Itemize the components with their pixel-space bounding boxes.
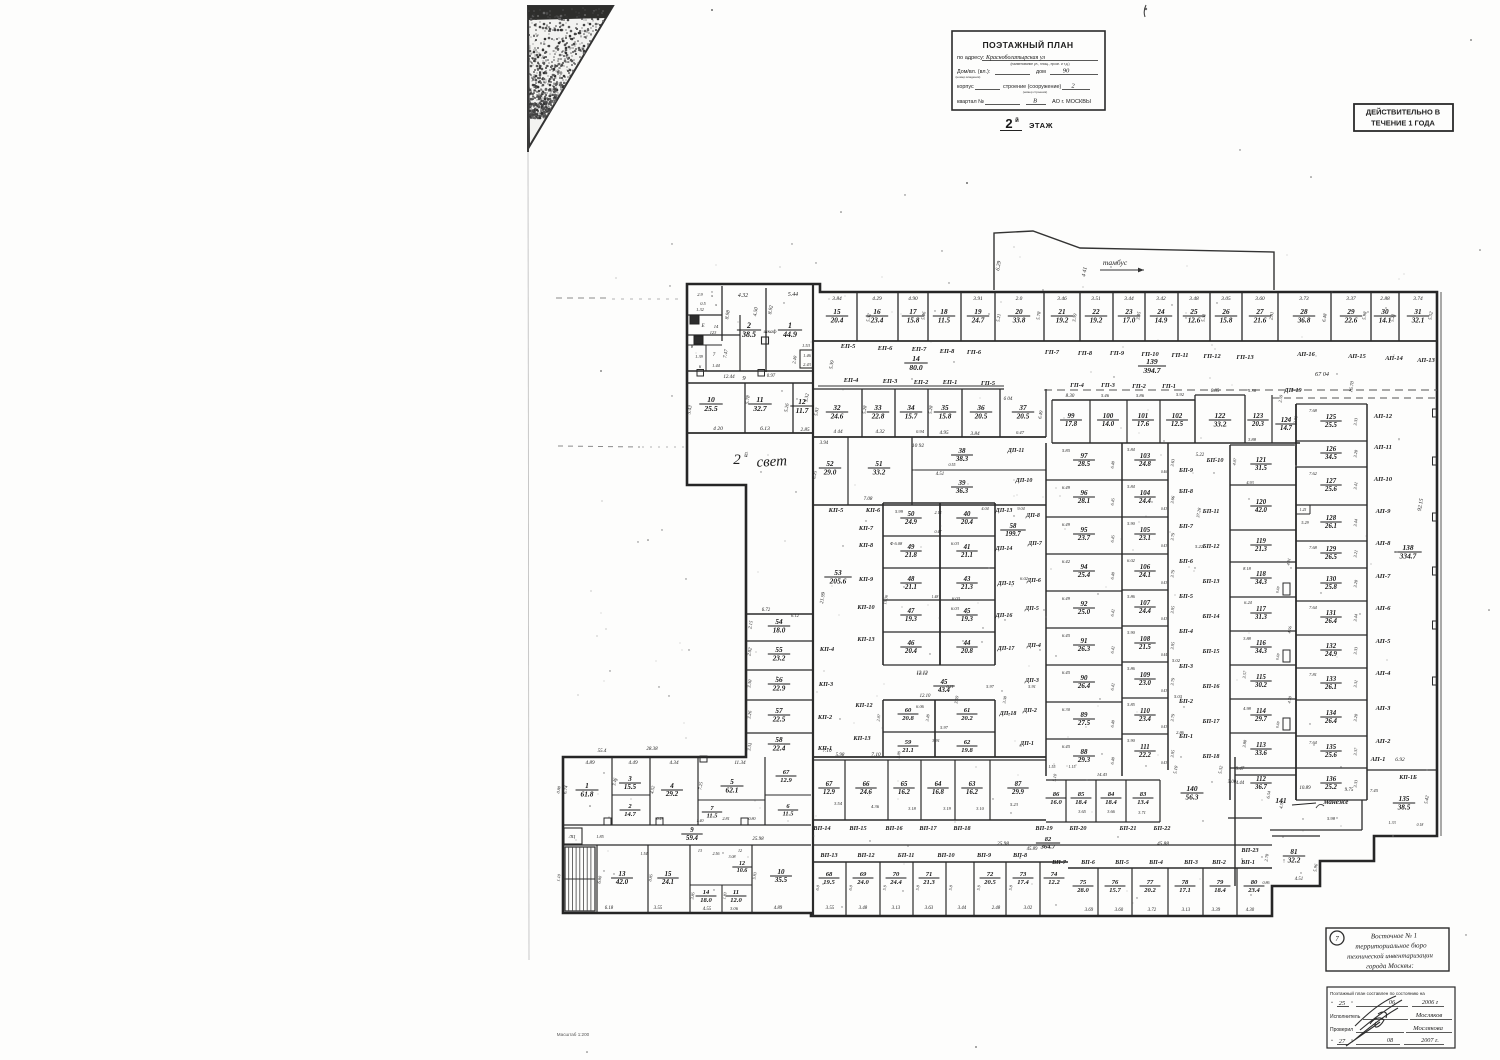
svg-text:БП-12: БП-12 — [1202, 543, 1220, 550]
svg-text:90: 90 — [1063, 68, 1070, 75]
svg-text:5.44: 5.44 — [788, 291, 798, 298]
svg-text:15: 15 — [833, 308, 841, 316]
svg-text:5.90: 5.90 — [1127, 521, 1135, 526]
svg-text:135: 135 — [1399, 795, 1410, 803]
svg-text:3.08: 3.08 — [729, 854, 736, 859]
svg-text:9: 9 — [690, 827, 694, 834]
svg-text:25.5: 25.5 — [703, 404, 717, 413]
svg-text:АП-16: АП-16 — [1296, 351, 1315, 358]
svg-text:ГП-9: ГП-9 — [1109, 350, 1125, 357]
svg-text:5.02: 5.02 — [1172, 658, 1181, 663]
svg-text:АО г. МОСКВЫ: АО г. МОСКВЫ — [1052, 99, 1091, 105]
svg-text:6.02: 6.02 — [1127, 558, 1135, 563]
svg-text:3.48: 3.48 — [1188, 296, 1199, 302]
svg-text:130: 130 — [1326, 576, 1337, 583]
svg-text:129: 129 — [1326, 546, 1337, 553]
svg-text:ВП-23: ВП-23 — [1240, 847, 1258, 854]
svg-text:7.81: 7.81 — [1309, 672, 1317, 677]
svg-text:ДП-4: ДП-4 — [1026, 643, 1041, 649]
svg-text:6.24: 6.24 — [1244, 600, 1252, 605]
svg-text:1.54: 1.54 — [641, 851, 648, 856]
svg-text:ДП-14: ДП-14 — [995, 546, 1013, 552]
svg-text:76: 76 — [1112, 879, 1119, 886]
svg-text:65: 65 — [901, 781, 908, 788]
svg-text:БП-17: БП-17 — [1202, 718, 1221, 725]
svg-text:Исполнитель: Исполнитель — [1330, 1014, 1361, 1020]
svg-text:18.0: 18.0 — [773, 626, 786, 634]
svg-text:21.6: 21.6 — [1253, 316, 1267, 324]
svg-text:135: 135 — [1326, 744, 1337, 751]
svg-text:ПОЭТАЖНЫЙ ПЛАН: ПОЭТАЖНЫЙ ПЛАН — [982, 39, 1073, 50]
svg-text:2.48: 2.48 — [992, 906, 1001, 911]
svg-text:6.49: 6.49 — [1062, 485, 1071, 490]
svg-text:6.45: 6.45 — [1062, 633, 1071, 638]
svg-text:108: 108 — [1140, 636, 1151, 643]
svg-text:26.1: 26.1 — [1324, 523, 1337, 530]
svg-text:3.44: 3.44 — [958, 906, 967, 911]
svg-text:11.5: 11.5 — [707, 813, 719, 820]
svg-text:2: 2 — [1005, 116, 1012, 131]
svg-text:81: 81 — [1290, 848, 1297, 856]
svg-text:15.7: 15.7 — [1109, 887, 1121, 894]
svg-text:3.02: 3.02 — [1024, 906, 1033, 911]
svg-text:3.66: 3.66 — [1107, 809, 1115, 814]
svg-text:22.8: 22.8 — [871, 412, 885, 420]
svg-text:7.68: 7.68 — [1309, 545, 1317, 550]
svg-text:92: 92 — [1081, 600, 1089, 608]
svg-text:73: 73 — [1020, 871, 1027, 878]
svg-text:20.4: 20.4 — [830, 316, 844, 324]
svg-text:0.43: 0.43 — [1161, 725, 1167, 729]
svg-text:126: 126 — [1326, 446, 1337, 453]
svg-text:21.1: 21.1 — [960, 552, 973, 559]
svg-text:ДП-3: ДП-3 — [1024, 678, 1039, 684]
svg-text:19.2: 19.2 — [1090, 316, 1103, 324]
svg-text:3: 3 — [627, 775, 632, 783]
svg-text:22: 22 — [1091, 308, 1100, 316]
svg-text:19.3: 19.3 — [961, 616, 973, 623]
svg-text:21: 21 — [1057, 308, 1065, 316]
svg-text:ЕП-6: ЕП-6 — [877, 345, 893, 352]
svg-text:0.43: 0.43 — [1161, 507, 1167, 511]
svg-text:ДП-19: ДП-19 — [1283, 387, 1301, 394]
svg-text:17.8: 17.8 — [1065, 420, 1078, 428]
svg-text:115: 115 — [1256, 674, 1266, 681]
svg-text:29: 29 — [1346, 308, 1355, 316]
svg-text:5.22: 5.22 — [1195, 544, 1204, 549]
svg-text:24: 24 — [1156, 308, 1165, 316]
svg-text:5.97: 5.97 — [986, 684, 994, 689]
svg-text:42.0: 42.0 — [1254, 507, 1267, 514]
svg-text:59: 59 — [905, 739, 912, 746]
svg-text:КП-6: КП-6 — [865, 507, 881, 514]
svg-text:ВП-19: ВП-19 — [1034, 825, 1052, 832]
svg-text:7.68: 7.68 — [1309, 408, 1317, 413]
svg-text:13.4: 13.4 — [1137, 799, 1149, 806]
svg-text:88: 88 — [1081, 748, 1089, 756]
svg-text:Восточное № 1: Восточное № 1 — [1371, 932, 1417, 941]
svg-text:12.5: 12.5 — [1171, 420, 1184, 428]
svg-text:6.92: 6.92 — [1395, 757, 1405, 763]
svg-text:124: 124 — [1281, 417, 1292, 424]
svg-text:21.8: 21.8 — [904, 552, 917, 559]
svg-text:ВП-7: ВП-7 — [1051, 860, 1067, 866]
svg-text:17: 17 — [909, 308, 917, 316]
svg-text:17.4: 17.4 — [1017, 879, 1029, 886]
svg-text:24.4: 24.4 — [1138, 498, 1151, 505]
svg-text:20: 20 — [1014, 308, 1023, 316]
svg-text:4.30: 4.30 — [1246, 908, 1255, 913]
svg-text:67: 67 — [826, 781, 833, 788]
svg-text:БП-13: БП-13 — [1202, 578, 1220, 585]
svg-text:ЕП-8: ЕП-8 — [939, 348, 955, 355]
svg-text:71: 71 — [926, 871, 933, 878]
svg-text:20.2: 20.2 — [960, 715, 973, 722]
svg-text:20.4: 20.4 — [904, 648, 917, 655]
svg-text:17.0: 17.0 — [1123, 316, 1136, 324]
svg-text:24.9: 24.9 — [904, 519, 917, 526]
svg-text:32.7: 32.7 — [752, 404, 767, 413]
svg-text:12: 12 — [738, 848, 742, 853]
svg-text:АП-7: АП-7 — [1375, 573, 1392, 580]
svg-text:19.5: 19.5 — [823, 879, 835, 886]
svg-text:6.18: 6.18 — [605, 906, 614, 911]
svg-text:89: 89 — [1081, 711, 1089, 719]
svg-text:24.6: 24.6 — [830, 412, 844, 420]
svg-text:0.55: 0.55 — [949, 462, 956, 467]
svg-text:ВП-1: ВП-1 — [1240, 860, 1255, 866]
svg-text:60: 60 — [905, 707, 912, 714]
svg-text:133: 133 — [1326, 676, 1337, 683]
svg-text:5.85: 5.85 — [1127, 702, 1135, 707]
svg-text:0.97: 0.97 — [767, 374, 776, 379]
svg-text:х: х — [714, 302, 717, 307]
svg-text:5.85: 5.85 — [1062, 448, 1071, 453]
svg-text:14.1: 14.1 — [1379, 316, 1392, 324]
svg-text:7.62: 7.62 — [1309, 471, 1317, 476]
svg-text:18.4: 18.4 — [1105, 799, 1117, 806]
svg-text:ВП-4: ВП-4 — [1148, 860, 1163, 866]
svg-text:34.5: 34.5 — [1324, 454, 1337, 461]
svg-text:2.9: 2.9 — [697, 292, 703, 297]
svg-text:96: 96 — [1081, 489, 1089, 497]
svg-text:ТЕЧЕНИЕ 1 ГОДА: ТЕЧЕНИЕ 1 ГОДА — [1371, 119, 1435, 128]
svg-text:БП-20: БП-20 — [1069, 825, 1087, 832]
svg-text:8.18: 8.18 — [1243, 566, 1251, 571]
svg-text:44: 44 — [963, 640, 971, 647]
svg-text:91: 91 — [1081, 637, 1088, 645]
svg-text:1.25: 1.25 — [1300, 508, 1307, 512]
svg-text:72: 72 — [987, 871, 994, 878]
svg-text:32.2: 32.2 — [1287, 856, 1301, 864]
svg-text:х: х — [710, 293, 713, 298]
svg-text:84: 84 — [1108, 791, 1115, 798]
svg-text:ДП-8: ДП-8 — [1025, 513, 1040, 519]
svg-text:44.9: 44.9 — [782, 330, 797, 339]
svg-text:90: 90 — [1081, 674, 1089, 682]
svg-text:ДП-18: ДП-18 — [999, 711, 1017, 717]
svg-text:ЕП-4: ЕП-4 — [843, 377, 859, 384]
svg-text:23.1: 23.1 — [1138, 535, 1151, 542]
svg-text:шкаф: шкаф — [764, 328, 777, 335]
svg-text:11.5: 11.5 — [938, 316, 951, 324]
svg-text:3.74: 3.74 — [1412, 296, 1423, 302]
svg-text:й: й — [744, 451, 748, 459]
svg-text:Проверил: Проверил — [1330, 1027, 1353, 1033]
svg-text:ДП-7: ДП-7 — [1027, 541, 1043, 547]
svg-text:134: 134 — [1326, 710, 1337, 717]
svg-text:12.6: 12.6 — [1188, 316, 1201, 324]
svg-text:15: 15 — [665, 871, 672, 878]
svg-text:ВП-9: ВП-9 — [976, 852, 991, 859]
svg-text:63: 63 — [969, 781, 976, 788]
svg-text:1.55: 1.55 — [1049, 764, 1056, 769]
svg-text:78: 78 — [1182, 879, 1189, 886]
svg-text:3.48: 3.48 — [859, 906, 868, 911]
svg-text:0.18: 0.18 — [1417, 823, 1424, 827]
svg-text:Поэтажный план составлен по со: Поэтажный план составлен по состоянию на — [1330, 990, 1425, 996]
svg-text:20.2: 20.2 — [1143, 887, 1156, 894]
svg-text:08: 08 — [1387, 1037, 1394, 1044]
svg-text:0.43: 0.43 — [1161, 581, 1167, 585]
svg-text:6.49: 6.49 — [1062, 596, 1071, 601]
svg-text:14.0: 14.0 — [1102, 420, 1115, 428]
svg-text:КП-10: КП-10 — [856, 604, 874, 611]
svg-text:21.3: 21.3 — [1254, 546, 1267, 553]
svg-text:50: 50 — [908, 511, 915, 518]
svg-text:15.8: 15.8 — [907, 316, 920, 324]
svg-text:0.43: 0.43 — [1161, 617, 1167, 621]
svg-text:11.5: 11.5 — [783, 811, 795, 818]
svg-text:40: 40 — [963, 511, 971, 518]
svg-text:70: 70 — [893, 871, 900, 878]
svg-text:82: 82 — [1045, 836, 1052, 843]
svg-text:ЕП-3: ЕП-3 — [882, 378, 898, 385]
svg-text:ДП-16: ДП-16 — [995, 613, 1013, 619]
svg-text:64: 64 — [935, 781, 942, 788]
svg-text:69: 69 — [860, 871, 867, 878]
svg-text:25.6: 25.6 — [1324, 752, 1337, 759]
svg-text:3.13: 3.13 — [1182, 908, 1191, 913]
svg-text:54: 54 — [775, 618, 783, 626]
svg-text:КП-7: КП-7 — [858, 525, 874, 532]
svg-text:20.3: 20.3 — [1251, 421, 1264, 428]
svg-text:ЕП-1: ЕП-1 — [942, 379, 958, 386]
svg-text:19.8: 19.8 — [961, 747, 973, 754]
svg-text:123: 123 — [710, 330, 717, 335]
svg-text:119: 119 — [1256, 538, 1266, 545]
svg-text:12.0: 12.0 — [730, 897, 742, 904]
svg-text:101: 101 — [1138, 412, 1149, 420]
svg-text:20.4: 20.4 — [960, 519, 973, 526]
svg-text:0.94: 0.94 — [916, 429, 925, 434]
svg-text:109: 109 — [1140, 672, 1151, 679]
svg-text:25.0: 25.0 — [1077, 608, 1091, 616]
svg-text:103: 103 — [1140, 453, 1151, 460]
svg-text:24.6: 24.6 — [859, 789, 872, 796]
svg-text:АП-11: АП-11 — [1373, 444, 1392, 451]
svg-text:25.2: 25.2 — [1324, 784, 1337, 791]
svg-text:127: 127 — [1326, 478, 1337, 485]
svg-text:41: 41 — [963, 544, 971, 551]
svg-text:Масштаб 1:200: Масштаб 1:200 — [557, 1032, 590, 1037]
svg-text:25: 25 — [1189, 308, 1198, 316]
svg-text:20.5: 20.5 — [974, 412, 988, 420]
svg-text:61.8: 61.8 — [581, 790, 594, 799]
svg-text:АП-10: АП-10 — [1373, 476, 1393, 483]
svg-text:2: 2 — [746, 321, 751, 330]
svg-text:3.91: 3.91 — [932, 738, 940, 743]
svg-text:5.86: 5.86 — [1136, 393, 1145, 398]
svg-text:31: 31 — [1413, 308, 1421, 316]
svg-text:27: 27 — [1255, 308, 1264, 316]
svg-text:118: 118 — [1256, 571, 1266, 578]
svg-text:ЛЦ: ЛЦ — [568, 834, 576, 839]
svg-text:ГП-7: ГП-7 — [1044, 349, 1060, 356]
svg-text:ЕП-2: ЕП-2 — [913, 379, 929, 386]
svg-text:6.03: 6.03 — [951, 606, 960, 611]
svg-text:3.84: 3.84 — [831, 296, 842, 302]
svg-text:3.73: 3.73 — [1298, 296, 1309, 302]
svg-text:ВП-18: ВП-18 — [952, 825, 970, 832]
svg-text:43: 43 — [963, 576, 971, 583]
svg-text:15.8: 15.8 — [1220, 316, 1233, 324]
svg-text:4.89: 4.89 — [774, 906, 783, 911]
svg-text:30: 30 — [1380, 308, 1389, 316]
svg-text:тамбус: тамбус — [1103, 258, 1128, 267]
svg-text:6.45: 6.45 — [1062, 744, 1071, 749]
svg-text:АП-6: АП-6 — [1375, 605, 1392, 612]
svg-text:20.8: 20.8 — [960, 648, 973, 655]
svg-text:1.46: 1.46 — [803, 353, 811, 358]
svg-text:ДП-5: ДП-5 — [1024, 606, 1039, 612]
svg-text:4.55: 4.55 — [703, 907, 712, 912]
svg-text:39: 39 — [958, 479, 967, 487]
svg-text:10.6: 10.6 — [737, 868, 748, 874]
svg-text:2.14: 2.14 — [935, 510, 942, 515]
svg-text:18.0: 18.0 — [700, 897, 712, 904]
svg-text:12.9: 12.9 — [780, 777, 792, 784]
svg-text:БП-15: БП-15 — [1202, 648, 1220, 655]
svg-text:1.40: 1.40 — [697, 818, 704, 823]
svg-text:74: 74 — [1051, 871, 1058, 878]
svg-text:КП-8: КП-8 — [858, 542, 873, 549]
svg-text:136: 136 — [1326, 776, 1337, 783]
svg-text:7.10: 7.10 — [822, 748, 831, 754]
svg-text:32: 32 — [832, 404, 841, 412]
svg-text:3.71: 3.71 — [1138, 810, 1146, 815]
svg-text:86: 86 — [1053, 791, 1060, 798]
svg-text:38: 38 — [958, 447, 967, 455]
svg-text:26.1: 26.1 — [1324, 684, 1337, 691]
svg-text:28.1: 28.1 — [1077, 497, 1090, 505]
svg-text:БП-9: БП-9 — [1178, 467, 1193, 474]
svg-text:ВП-10: ВП-10 — [936, 852, 954, 859]
svg-text:2006 г: 2006 г — [1422, 999, 1439, 1006]
svg-text:3.37: 3.37 — [1345, 296, 1356, 302]
svg-text:4.95: 4.95 — [939, 429, 948, 436]
svg-text:85: 85 — [1078, 791, 1085, 798]
svg-text:80: 80 — [1251, 879, 1258, 886]
svg-text:БП-11: БП-11 — [1202, 508, 1220, 515]
svg-text:4 20: 4 20 — [713, 426, 723, 432]
svg-text:4: 4 — [669, 782, 674, 790]
svg-text:79: 79 — [1217, 879, 1224, 886]
svg-text:6.72: 6.72 — [762, 608, 771, 613]
svg-text:14.7: 14.7 — [1280, 425, 1292, 432]
svg-text:КП-3: КП-3 — [818, 681, 833, 688]
svg-text:125: 125 — [1326, 414, 1337, 421]
svg-text:ГП-11: ГП-11 — [1171, 352, 1189, 359]
svg-text:ДП-13: ДП-13 — [995, 508, 1013, 514]
svg-text:3.44: 3.44 — [1123, 296, 1134, 302]
svg-text:4.44: 4.44 — [1236, 781, 1245, 786]
svg-text:16.2: 16.2 — [898, 789, 910, 796]
svg-text:Ф 6.08: Ф 6.08 — [890, 541, 903, 546]
svg-text:114: 114 — [1256, 708, 1266, 715]
svg-text:26.4: 26.4 — [1324, 718, 1337, 725]
svg-text:7.08: 7.08 — [864, 497, 873, 502]
svg-text:12.12: 12.12 — [916, 671, 928, 676]
svg-text:БП-14: БП-14 — [1202, 613, 1220, 620]
svg-text:3.94: 3.94 — [820, 441, 829, 446]
svg-text:16.0: 16.0 — [1050, 799, 1062, 806]
svg-text:АП-1: АП-1 — [1370, 756, 1386, 763]
svg-text:102: 102 — [1172, 412, 1183, 420]
svg-text:58: 58 — [1010, 523, 1017, 530]
svg-text:120: 120 — [1256, 499, 1267, 506]
svg-text:ДП-17: ДП-17 — [997, 646, 1016, 652]
svg-text:3.55: 3.55 — [826, 906, 835, 911]
svg-text:ДЕЙСТВИТЕЛЬНО В: ДЕЙСТВИТЕЛЬНО В — [1366, 108, 1440, 117]
svg-text:0.47: 0.47 — [1016, 430, 1025, 435]
svg-text:16.8: 16.8 — [932, 789, 944, 796]
svg-text:29.3: 29.3 — [1077, 756, 1091, 764]
svg-text:12.10: 12.10 — [920, 694, 931, 699]
svg-text:КП-1Б: КП-1Б — [1398, 775, 1417, 781]
svg-text:4.98: 4.98 — [1243, 706, 1251, 711]
svg-text:1.39: 1.39 — [695, 354, 703, 359]
svg-text:68: 68 — [826, 871, 833, 878]
svg-text:4.32: 4.32 — [738, 292, 748, 299]
svg-text:95: 95 — [1081, 526, 1089, 534]
svg-text:6.42: 6.42 — [1062, 559, 1071, 564]
svg-text:Краснобогатырская ул: Краснобогатырская ул — [985, 54, 1045, 61]
svg-text:1.48: 1.48 — [932, 595, 939, 599]
svg-text:34.3: 34.3 — [1254, 579, 1267, 586]
svg-text:БП-2: БП-2 — [1178, 698, 1193, 705]
svg-text:29.7: 29.7 — [1254, 716, 1267, 723]
svg-text:ВП-3: ВП-3 — [1183, 860, 1198, 866]
svg-text:38.3: 38.3 — [955, 455, 969, 463]
svg-text:Е: Е — [700, 324, 704, 329]
svg-text:13: 13 — [698, 848, 702, 853]
svg-text:26.5: 26.5 — [1324, 554, 1337, 561]
svg-text:132: 132 — [1326, 643, 1337, 650]
svg-text:21.1: 21.1 — [904, 584, 917, 591]
svg-text:18.4: 18.4 — [1075, 799, 1087, 806]
svg-text:12.44: 12.44 — [723, 375, 735, 380]
svg-text:по адресу:: по адресу: — [957, 55, 985, 61]
svg-text:БП-10: БП-10 — [1206, 457, 1224, 464]
svg-text:Мосляков: Мосляков — [1415, 1012, 1443, 1019]
svg-text:131: 131 — [1326, 610, 1336, 617]
svg-text:АП-2: АП-2 — [1375, 738, 1392, 745]
svg-text:394.7: 394.7 — [1142, 366, 1161, 375]
svg-text:121: 121 — [1256, 457, 1266, 464]
svg-text:6 04: 6 04 — [1004, 397, 1013, 402]
svg-text:2.85: 2.85 — [800, 427, 809, 433]
